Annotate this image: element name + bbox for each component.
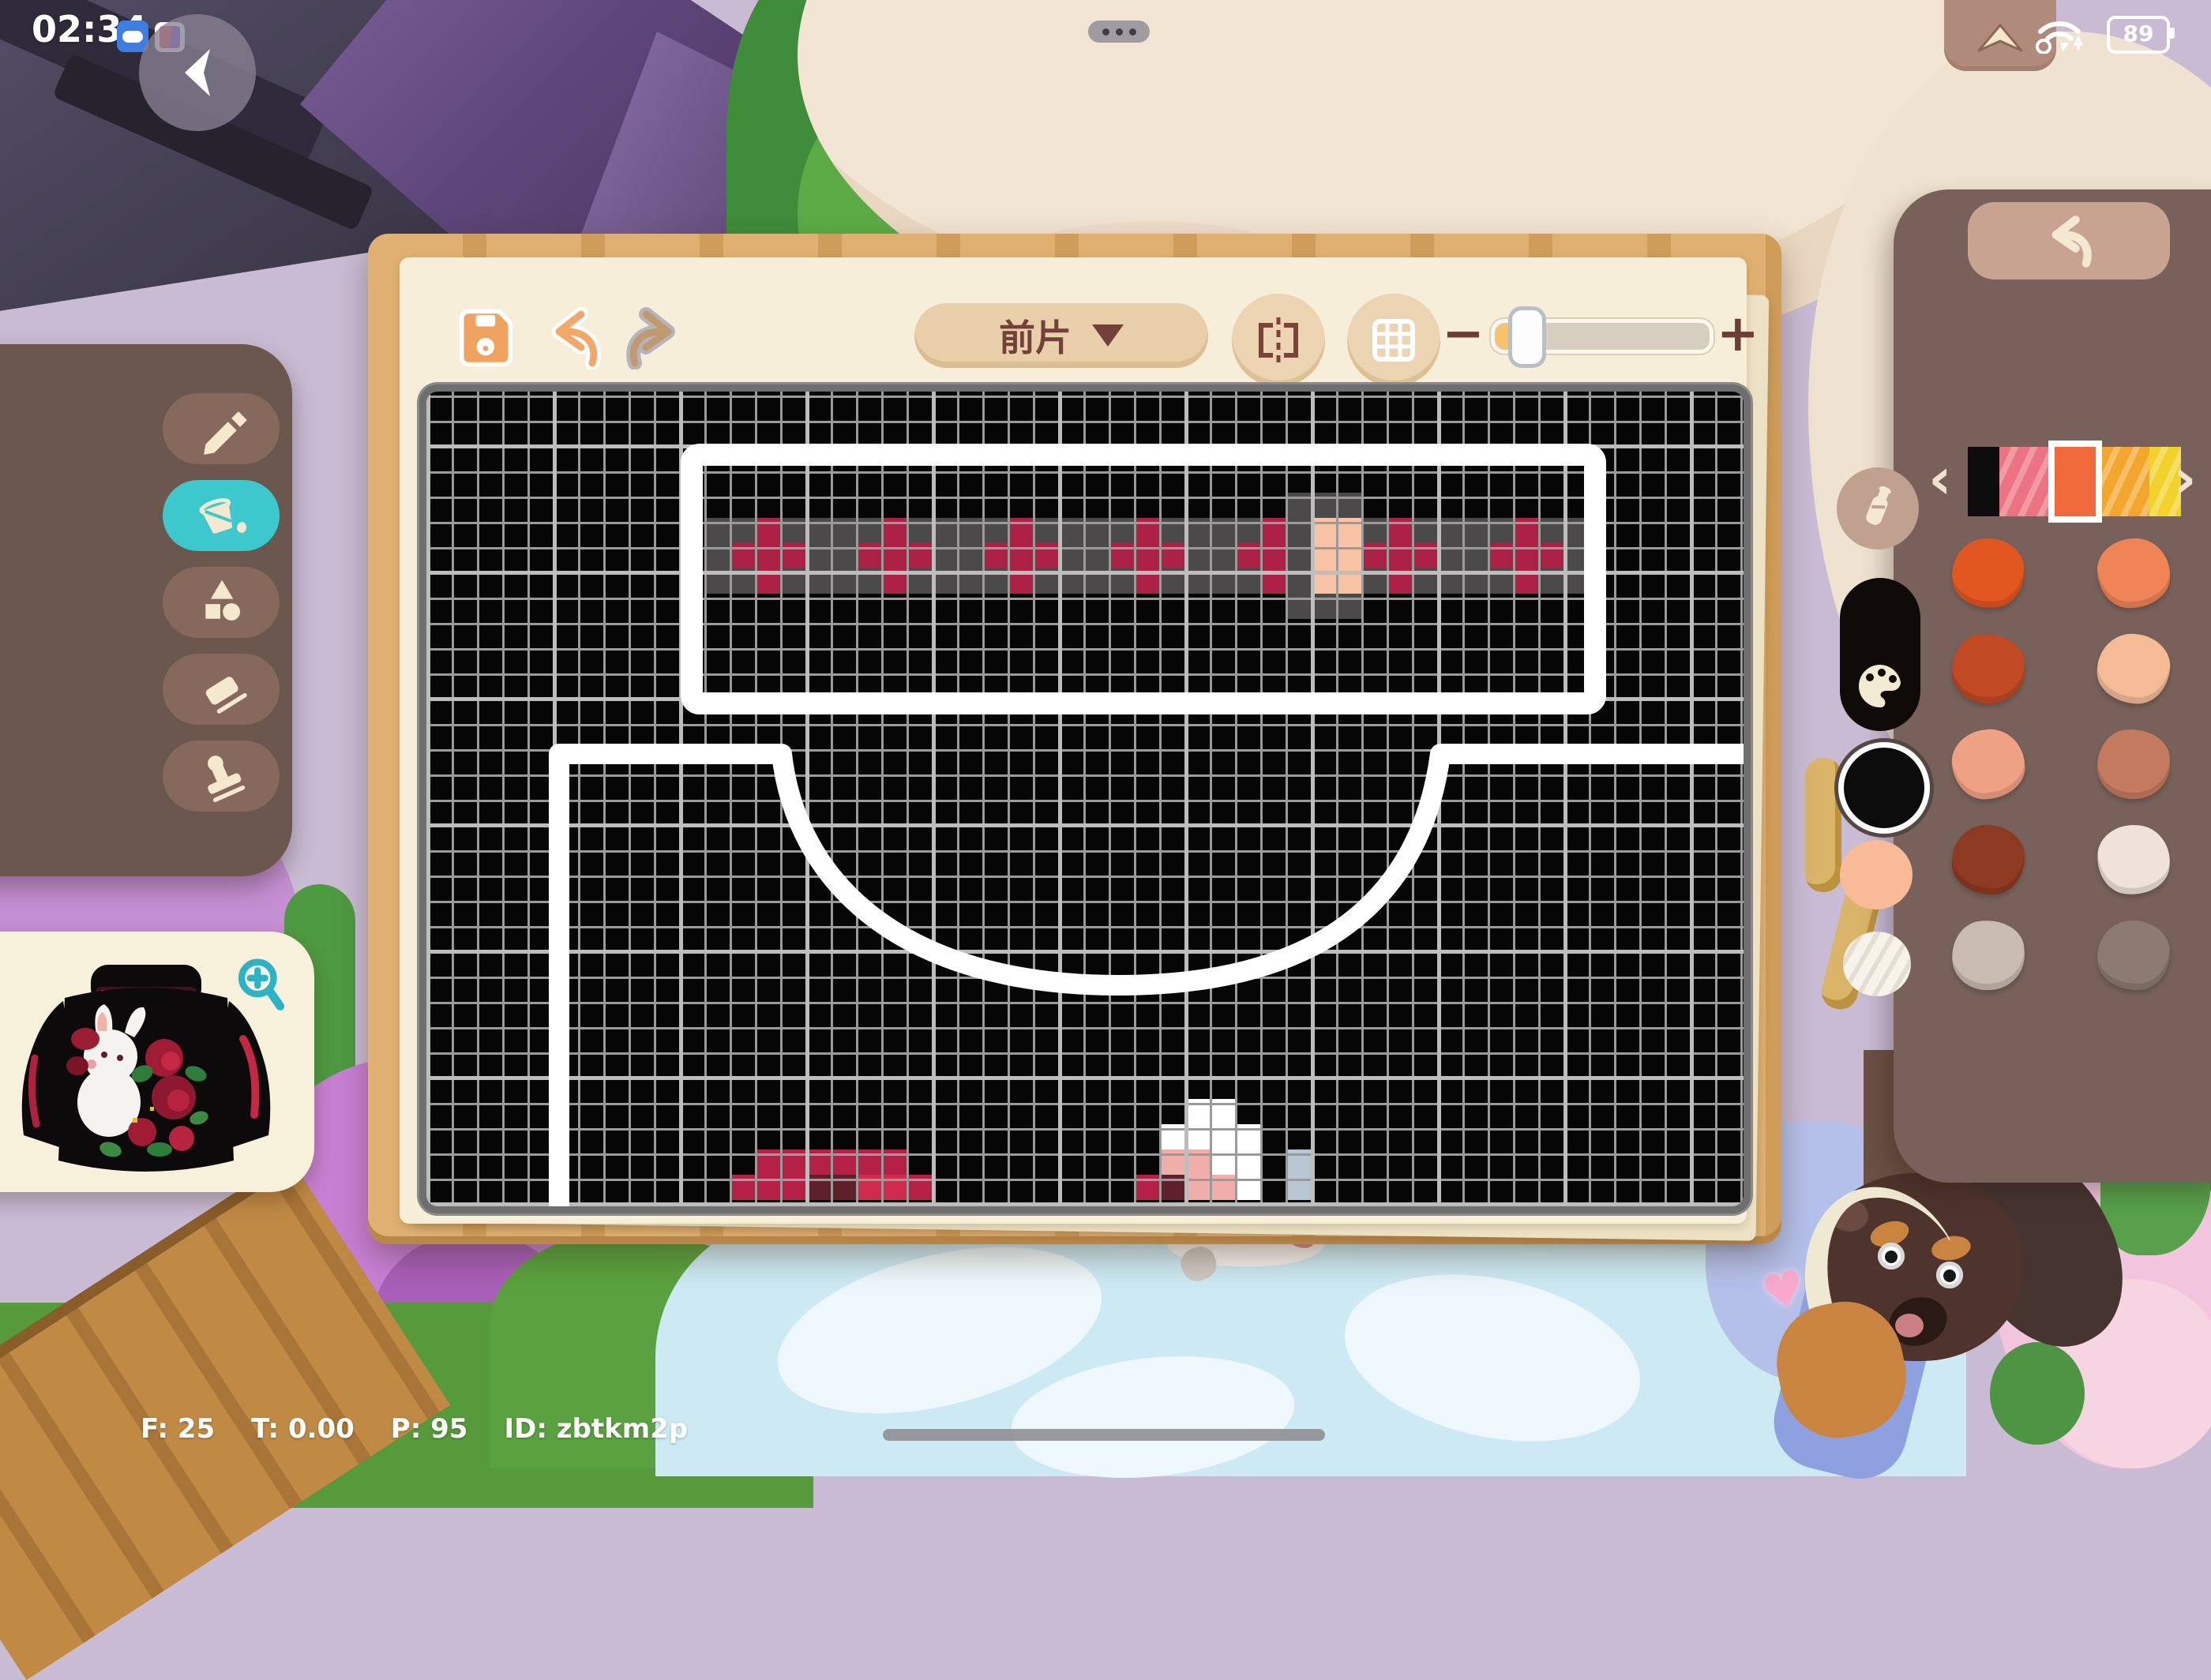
- collar-band-pixel: [1387, 543, 1412, 568]
- pattern-pixel: [1184, 1124, 1210, 1149]
- collar-band-pixel: [1336, 594, 1361, 619]
- pattern-pixel: [805, 1149, 831, 1175]
- collar-band-pixel: [1260, 568, 1286, 594]
- collar-band-pixel: [1260, 543, 1286, 568]
- milk-bottle-button[interactable]: [1837, 467, 1919, 549]
- stamp-tool[interactable]: [163, 741, 280, 812]
- zoom-in-magnifier: [233, 954, 290, 1014]
- collar-band-pixel: [1412, 568, 1437, 594]
- collar-band-pixel: [907, 543, 932, 568]
- collar-band-pixel: [1311, 493, 1336, 518]
- color-swatch[interactable]: [2095, 823, 2173, 898]
- collar-band-pixel: [856, 518, 881, 543]
- collar-band-pixel: [932, 518, 957, 543]
- palette-strip-segment[interactable]: [2048, 441, 2102, 523]
- pencil-tool[interactable]: [163, 393, 280, 464]
- collar-band-pixel: [1008, 518, 1033, 543]
- color-swatch[interactable]: [1950, 536, 2028, 611]
- floppy-save-icon: [458, 308, 515, 368]
- collar-band-pixel: [907, 568, 932, 594]
- collar-band-pixel: [704, 568, 730, 594]
- pattern-pixel: [1134, 1175, 1159, 1200]
- pattern-pixel: [1184, 1175, 1210, 1200]
- collar-band-pixel: [1184, 568, 1210, 594]
- collar-band-pixel: [881, 543, 907, 568]
- pattern-pixel: [1159, 1149, 1184, 1175]
- collar-band-pixel: [831, 518, 856, 543]
- collar-band-pixel: [730, 518, 755, 543]
- collar-band-pixel: [1336, 493, 1361, 518]
- zoom-in-button[interactable]: +: [1717, 305, 1759, 363]
- shapes-icon: [193, 575, 249, 630]
- collar-band-pixel: [1286, 594, 1311, 619]
- collar-band-pixel: [1109, 568, 1134, 594]
- collar-band-pixel: [1159, 518, 1184, 543]
- collar-band-pixel: [856, 568, 881, 594]
- zoom-out-button[interactable]: −: [1442, 305, 1485, 363]
- preview-zoom-button[interactable]: [233, 954, 290, 1017]
- collar-band-pixel: [1058, 518, 1083, 543]
- collar-band-pixel: [1134, 568, 1159, 594]
- palette-next-chevron[interactable]: ›: [2173, 439, 2197, 518]
- collar-band-pixel: [957, 568, 982, 594]
- collar-band-pixel: [1462, 543, 1488, 568]
- collar-band-pixel: [1058, 543, 1083, 568]
- collar-band-pixel: [1361, 568, 1387, 594]
- collar-band-pixel: [1033, 543, 1058, 568]
- back-arrow-icon: [169, 41, 226, 104]
- collar-band-pixel: [1488, 518, 1513, 543]
- collar-band-pixel: [1437, 568, 1462, 594]
- collar-band-pixel: [1286, 568, 1311, 594]
- collar-band-pixel: [1387, 568, 1412, 594]
- collar-band-pixel: [780, 568, 805, 594]
- collar-band-pixel: [932, 568, 957, 594]
- collar-band-pixel: [1109, 543, 1134, 568]
- collar-band-pixel: [704, 518, 730, 543]
- pattern-pixel: [1210, 1124, 1235, 1149]
- palette-strip: [1968, 447, 2181, 516]
- collar-band-pixel: [1538, 543, 1563, 568]
- collar-band-pixel: [1210, 568, 1235, 594]
- artist-palette-icon: [1854, 660, 1906, 712]
- collar-band-pixel: [1513, 568, 1538, 594]
- collar-band-pixel: [805, 543, 831, 568]
- collar-band-pixel: [856, 543, 881, 568]
- collar-band-pixel: [805, 568, 831, 594]
- collar-band-pixel: [1563, 568, 1589, 594]
- debug-stat: F: 25: [141, 1413, 215, 1445]
- collar-band-pixel: [1462, 518, 1488, 543]
- collar-band-pixel: [1336, 543, 1361, 568]
- collar-band-pixel: [1286, 543, 1311, 568]
- collar-band-pixel: [1210, 518, 1235, 543]
- palette-prev-chevron[interactable]: ‹: [1928, 439, 1952, 518]
- current-color-indicator[interactable]: [1838, 742, 1930, 834]
- save-button[interactable]: [458, 308, 515, 371]
- redo-arrow-icon: [621, 306, 685, 369]
- eraser-tool[interactable]: [163, 654, 280, 725]
- eraser-icon: [193, 662, 249, 717]
- collar-band-pixel: [805, 518, 831, 543]
- collar-band-pixel: [1184, 518, 1210, 543]
- wifi-icon: [2026, 11, 2094, 54]
- collar-band-pixel: [957, 518, 982, 543]
- chevron-down-icon: [1092, 324, 1124, 347]
- debug-stats: F: 25T: 0.00P: 95ID: zbtkm2p: [141, 1413, 688, 1445]
- collar-band-pixel: [1008, 543, 1033, 568]
- collar-band-pixel: [1563, 543, 1589, 568]
- mirror-symmetry-icon: [1253, 314, 1304, 366]
- collar-band-pixel: [982, 568, 1008, 594]
- pattern-pixel: [1210, 1149, 1235, 1175]
- collar-band-pixel: [704, 543, 730, 568]
- pixel-layer: [426, 392, 1744, 1206]
- quick-color-peach[interactable]: [1840, 840, 1913, 909]
- debug-stat: P: 95: [391, 1413, 468, 1445]
- palette-undo-button[interactable]: [1968, 202, 2170, 279]
- collar-band-pixel: [1134, 518, 1159, 543]
- pattern-pixel: [1210, 1099, 1235, 1124]
- pattern-pixel: [755, 1175, 780, 1200]
- pattern-pixel: [805, 1175, 831, 1200]
- collar-band-pixel: [1538, 518, 1563, 543]
- collar-band-pixel: [1235, 543, 1260, 568]
- collar-band-pixel: [1311, 594, 1336, 619]
- pattern-pixel: [1286, 1149, 1311, 1175]
- color-swatch[interactable]: [2097, 729, 2171, 800]
- piece-selector-label: 前片: [999, 309, 1072, 362]
- palette-mode-button[interactable]: [1840, 578, 1920, 731]
- collar-band-pixel: [982, 518, 1008, 543]
- mirror-button[interactable]: [1232, 294, 1325, 387]
- collar-band-pixel: [755, 568, 780, 594]
- pattern-pixel: [1210, 1175, 1235, 1200]
- undo-arrow-icon: [542, 306, 606, 369]
- collar-band-pixel: [957, 543, 982, 568]
- grid-toggle-icon: [1368, 315, 1419, 366]
- collar-band-pixel: [1109, 518, 1134, 543]
- palette-strip-segment[interactable]: [1968, 447, 1999, 516]
- collar-band-pixel: [881, 518, 907, 543]
- collar-band-pixel: [1311, 518, 1336, 543]
- collar-band-pixel: [1286, 493, 1311, 518]
- color-swatch[interactable]: [1950, 727, 2028, 802]
- collar-band-pixel: [1083, 568, 1109, 594]
- bg-pink-flower-leaf: [1990, 1342, 2085, 1445]
- collar-band-pixel: [1210, 543, 1235, 568]
- collar-band-pixel: [780, 518, 805, 543]
- battery-icon: 89: [2107, 16, 2170, 54]
- collar-band-pixel: [1008, 568, 1033, 594]
- collar-band-pixel: [1311, 568, 1336, 594]
- debug-stat: T: 0.00: [251, 1413, 355, 1445]
- palette-strip-segment[interactable]: [2102, 447, 2149, 516]
- collar-band-pixel: [1563, 518, 1589, 543]
- collar-band-pixel: [932, 543, 957, 568]
- color-swatch[interactable]: [2097, 538, 2171, 609]
- collar-band-pixel: [1437, 518, 1462, 543]
- pattern-pixel: [1184, 1149, 1210, 1175]
- garment-preview-card: [0, 932, 314, 1192]
- bucket-tool[interactable]: [163, 480, 280, 551]
- collar-band-pixel: [1412, 543, 1437, 568]
- collar-band-pixel: [1083, 543, 1109, 568]
- collar-band-pixel: [1134, 543, 1159, 568]
- collar-band-pixel: [907, 518, 932, 543]
- collar-band-pixel: [1387, 518, 1412, 543]
- collar-band-pixel: [1412, 518, 1437, 543]
- pattern-pixel: [856, 1149, 881, 1175]
- quick-color-white[interactable]: [1843, 932, 1911, 996]
- pencil-icon: [193, 401, 249, 456]
- collar-band-pixel: [1361, 518, 1387, 543]
- chevron-up-icon: [1969, 14, 2031, 58]
- pattern-pixel: [1235, 1175, 1260, 1200]
- pattern-pixel: [907, 1175, 932, 1200]
- collar-band-pixel: [1311, 543, 1336, 568]
- collar-band-pixel: [730, 568, 755, 594]
- collar-band-pixel: [1033, 568, 1058, 594]
- color-swatch[interactable]: [2095, 632, 2173, 707]
- pattern-pixel: [831, 1149, 856, 1175]
- collar-band-pixel: [1260, 518, 1286, 543]
- pattern-pixel: [780, 1149, 805, 1175]
- color-swatch[interactable]: [1951, 824, 2025, 895]
- battery-percent: 89: [2123, 21, 2154, 47]
- collar-band-pixel: [982, 543, 1008, 568]
- pattern-pixel: [881, 1149, 907, 1175]
- bg-gold-decor: [1805, 758, 1841, 892]
- pattern-pixel: [881, 1175, 907, 1200]
- color-swatch[interactable]: [1950, 918, 2028, 993]
- collar-band-pixel: [1159, 568, 1184, 594]
- pattern-pixel: [831, 1175, 856, 1200]
- multitask-dots-icon[interactable]: [1088, 21, 1150, 43]
- pattern-pixel: [1184, 1099, 1210, 1124]
- zoom-slider-handle[interactable]: [1508, 306, 1546, 368]
- collar-band-pixel: [1513, 543, 1538, 568]
- shapes-tool[interactable]: [163, 567, 280, 638]
- collar-band-pixel: [1513, 518, 1538, 543]
- collar-band-pixel: [1184, 543, 1210, 568]
- collar-band-pixel: [831, 568, 856, 594]
- pattern-pixel: [1159, 1175, 1184, 1200]
- swatch-grid: [1952, 538, 2211, 1012]
- pixel-canvas[interactable]: [426, 392, 1744, 1206]
- back-button[interactable]: [139, 14, 256, 131]
- collar-band-pixel: [1538, 568, 1563, 594]
- collar-band-pixel: [755, 543, 780, 568]
- stamp-icon: [193, 748, 249, 804]
- pattern-pixel: [755, 1149, 780, 1175]
- undo-arrow-icon: [2035, 211, 2103, 271]
- redo-button[interactable]: [621, 306, 685, 373]
- collar-band-pixel: [831, 543, 856, 568]
- home-indicator[interactable]: [883, 1429, 1325, 1441]
- collar-band-pixel: [1286, 518, 1311, 543]
- color-swatch[interactable]: [1951, 633, 2025, 704]
- color-swatch[interactable]: [2097, 920, 2171, 991]
- piece-selector-dropdown[interactable]: 前片: [914, 303, 1208, 368]
- pattern-pixel: [856, 1175, 881, 1200]
- collar-band-pixel: [881, 568, 907, 594]
- pattern-pixel: [780, 1175, 805, 1200]
- undo-button[interactable]: [542, 306, 606, 373]
- collar-band-pixel: [1159, 543, 1184, 568]
- collar-band-pixel: [1235, 568, 1260, 594]
- collar-band-pixel: [1336, 568, 1361, 594]
- collar-band-pixel: [1462, 568, 1488, 594]
- collar-band-pixel: [1033, 518, 1058, 543]
- milk-bottle-icon: [1856, 482, 1899, 534]
- collar-band-pixel: [780, 543, 805, 568]
- collar-band-pixel: [1083, 518, 1109, 543]
- pattern-pixel: [1235, 1124, 1260, 1149]
- pattern-pixel: [730, 1175, 755, 1200]
- pattern-pixel: [1159, 1124, 1184, 1149]
- collar-band-pixel: [1336, 518, 1361, 543]
- pattern-pixel: [1235, 1149, 1260, 1175]
- pattern-pixel: [1286, 1175, 1311, 1200]
- grid-toggle-button[interactable]: [1347, 294, 1440, 387]
- debug-stat: ID: zbtkm2p: [504, 1413, 688, 1445]
- palette-strip-segment[interactable]: [1999, 447, 2048, 516]
- collar-band-pixel: [1235, 518, 1260, 543]
- collar-band-pixel: [730, 543, 755, 568]
- collar-band-pixel: [1361, 543, 1387, 568]
- collar-band-pixel: [1488, 543, 1513, 568]
- collar-band-pixel: [1437, 543, 1462, 568]
- collar-band-pixel: [755, 518, 780, 543]
- paint-bucket-icon: [191, 488, 251, 543]
- collar-band-pixel: [1488, 568, 1513, 594]
- collar-band-pixel: [1058, 568, 1083, 594]
